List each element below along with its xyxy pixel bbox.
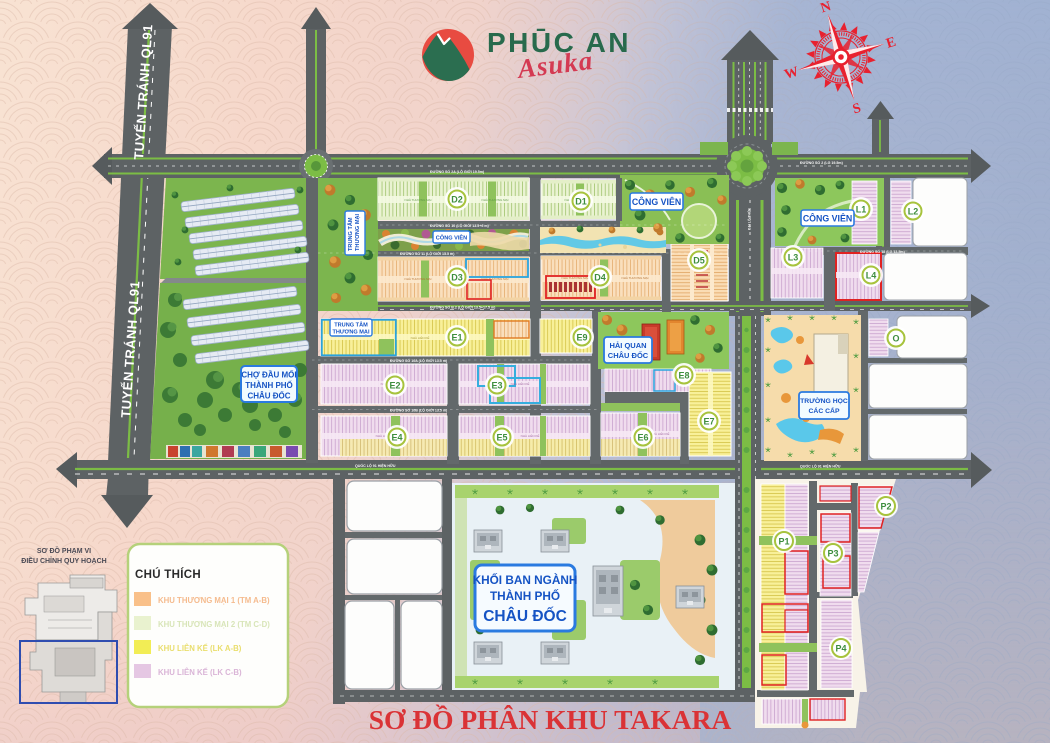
svg-text:E1: E1 (451, 333, 462, 343)
svg-text:ĐƯỜNG SỐ B.2 (LỘ GIỚI 13.5+17.: ĐƯỜNG SỐ B.2 (LỘ GIỚI 13.5+17.5 m) (430, 305, 496, 310)
svg-text:TRUNG TÂM: TRUNG TÂM (334, 322, 368, 329)
svg-text:CÔNG VIÊN: CÔNG VIÊN (436, 234, 467, 242)
svg-text:HẢI QUAN: HẢI QUAN (609, 341, 646, 350)
svg-text:ĐƯỜNG SỐ 18 (LG 13.5m): ĐƯỜNG SỐ 18 (LG 13.5m) (860, 249, 906, 254)
svg-text:ĐƯỜNG SỐ 10B (LỘ GIỚI 13.5 m): ĐƯỜNG SỐ 10B (LỘ GIỚI 13.5 m) (390, 407, 448, 412)
svg-text:KHU THƯƠNG MẠI 1 (TM A-B): KHU THƯƠNG MẠI 1 (TM A-B) (158, 596, 270, 605)
svg-text:CHÂU ĐỐC: CHÂU ĐỐC (608, 350, 649, 360)
svg-text:O: O (892, 334, 899, 344)
svg-text:E2: E2 (389, 381, 400, 391)
svg-text:CÔNG VIÊN: CÔNG VIÊN (632, 196, 681, 207)
svg-text:NHÀ THƯƠNG MẠI: NHÀ THƯƠNG MẠI (482, 277, 509, 281)
svg-text:THƯƠNG MẠI: THƯƠNG MẠI (355, 213, 361, 251)
svg-text:P1: P1 (778, 537, 789, 547)
svg-text:CHÚ THÍCH: CHÚ THÍCH (135, 568, 201, 581)
svg-text:TRƯỜNG HỌC: TRƯỜNG HỌC (800, 396, 848, 405)
svg-text:KHU LIÊN KẾ (LK A-B): KHU LIÊN KẾ (LK A-B) (158, 643, 242, 653)
svg-text:L4: L4 (866, 271, 877, 281)
svg-text:L3: L3 (788, 253, 799, 263)
svg-text:KHU LIÊN KẾ (LK C-B): KHU LIÊN KẾ (LK C-B) (158, 667, 242, 677)
svg-text:NHÀ LIÊN KẾ: NHÀ LIÊN KẾ (411, 335, 430, 340)
svg-text:D1: D1 (575, 197, 587, 207)
svg-text:THÀNH PHỐ: THÀNH PHỐ (490, 589, 560, 603)
svg-text:CHÂU ĐỐC: CHÂU ĐỐC (247, 391, 290, 401)
svg-text:E7: E7 (703, 417, 714, 427)
svg-text:CHỢ ĐẦU MỐI: CHỢ ĐẦU MỐI (241, 370, 296, 380)
svg-text:E6: E6 (637, 433, 648, 443)
svg-text:ĐƯỜNG SỐ 10A (LỘ GIỚI 13.5 m): ĐƯỜNG SỐ 10A (LỘ GIỚI 13.5 m) (390, 358, 448, 363)
svg-text:ĐƯỜNG SỐ 2 (LG 19.5m): ĐƯỜNG SỐ 2 (LG 19.5m) (800, 160, 844, 165)
svg-text:QUỐC LỘ 91 HIỆN HỮU: QUỐC LỘ 91 HIỆN HỮU (355, 463, 396, 468)
svg-text:D4: D4 (594, 273, 606, 283)
svg-text:THƯƠNG MẠI: THƯƠNG MẠI (332, 330, 370, 336)
svg-text:CHÂU ĐỐC: CHÂU ĐỐC (483, 607, 567, 625)
svg-text:NHÀ THƯƠNG MẠI: NHÀ THƯƠNG MẠI (562, 276, 589, 280)
svg-text:THÀNH PHỐ: THÀNH PHỐ (245, 380, 293, 390)
svg-text:NHÀ THƯƠNG MẠI: NHÀ THƯƠNG MẠI (482, 198, 509, 202)
svg-text:NHÀ THƯƠNG MẠI: NHÀ THƯƠNG MẠI (405, 277, 432, 281)
svg-text:SƠ ĐỒ PHÂN KHU TAKARA: SƠ ĐỒ PHÂN KHU TAKARA (369, 704, 732, 735)
svg-text:NHÀ THƯƠNG MẠI: NHÀ THƯƠNG MẠI (405, 198, 432, 202)
svg-text:QUỐC LỘ 91 HIỆN HỮU: QUỐC LỘ 91 HIỆN HỮU (800, 463, 841, 468)
svg-text:NHÀ THƯƠNG MẠI: NHÀ THƯƠNG MẠI (622, 276, 649, 280)
svg-text:P3: P3 (827, 549, 838, 559)
svg-text:P4: P4 (835, 644, 846, 654)
svg-text:L1: L1 (856, 205, 867, 215)
svg-text:TRUNG TÂM: TRUNG TÂM (347, 217, 354, 251)
svg-text:E5: E5 (496, 433, 507, 443)
svg-text:ĐẠI LỘ THỦY: ĐẠI LỘ THỦY (747, 208, 752, 230)
svg-text:L2: L2 (908, 207, 919, 217)
svg-text:NHÀ LIÊN KẾ: NHÀ LIÊN KẾ (521, 433, 540, 438)
svg-text:KHỐI BAN NGÀNH: KHỐI BAN NGÀNH (473, 573, 578, 587)
svg-text:D3: D3 (451, 273, 463, 283)
svg-text:ĐƯỜNG SỐ 11 (LỘ GIỚI 13.5 m): ĐƯỜNG SỐ 11 (LỘ GIỚI 13.5 m) (400, 251, 455, 256)
svg-text:CÔNG VIÊN: CÔNG VIÊN (803, 213, 852, 224)
svg-text:ĐƯỜNG SỐ 10 (LỘ GIỚI 13.5+6 m): ĐƯỜNG SỐ 10 (LỘ GIỚI 13.5+6 m) (430, 223, 490, 228)
svg-text:E9: E9 (576, 333, 587, 343)
svg-text:D2: D2 (451, 195, 463, 205)
svg-text:E8: E8 (678, 371, 689, 381)
svg-text:KHU THƯƠNG MẠI 2 (TM C-D): KHU THƯƠNG MẠI 2 (TM C-D) (158, 620, 270, 629)
svg-text:P2: P2 (880, 502, 891, 512)
svg-text:ĐƯỜNG SỐ 2A (LỘ GIỚI 19.5m): ĐƯỜNG SỐ 2A (LỘ GIỚI 19.5m) (430, 169, 485, 174)
svg-text:NHÀ LIÊN KẾ: NHÀ LIÊN KẾ (511, 381, 530, 386)
svg-text:D5: D5 (693, 256, 705, 266)
svg-text:E3: E3 (491, 381, 502, 391)
svg-text:E4: E4 (391, 433, 402, 443)
